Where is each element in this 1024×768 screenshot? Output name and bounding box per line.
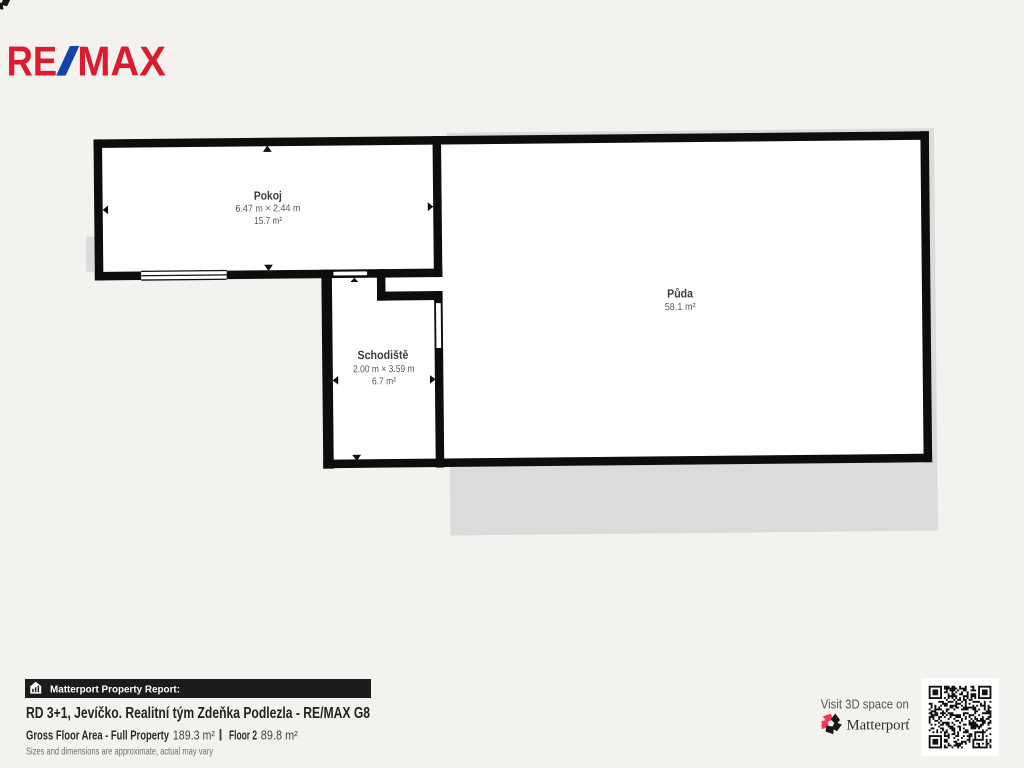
svg-text:Pokoj: Pokoj [254,188,282,202]
svg-text:Gross Floor Area - Full Proper: Gross Floor Area - Full Property [26,728,170,743]
svg-text:Visit 3D space on: Visit 3D space on [821,697,909,712]
svg-text:Matterport Property Report:: Matterport Property Report: [50,684,180,696]
svg-text:MAX: MAX [77,37,166,84]
svg-text:2.00 m × 3.59 m: 2.00 m × 3.59 m [353,364,415,376]
svg-text:89.8 m²: 89.8 m² [261,728,299,743]
svg-text:6.47 m × 2.44 m: 6.47 m × 2.44 m [235,203,300,215]
svg-text:RE: RE [7,37,58,84]
svg-text:Floor 2: Floor 2 [229,728,257,743]
svg-text:58.1 m²: 58.1 m² [665,302,697,313]
svg-text:15.7 m²: 15.7 m² [254,216,283,227]
svg-text:Schodiště: Schodiště [357,348,408,363]
svg-text:Půda: Půda [667,286,693,300]
svg-text:6.7 m²: 6.7 m² [372,376,397,387]
svg-text:189.3 m²: 189.3 m² [173,728,216,743]
svg-text:Matterport: Matterport [847,718,911,734]
svg-text:Sizes and dimensions are appro: Sizes and dimensions are approximate, ac… [26,746,214,758]
svg-text:RD 3+1, Jevíčko. Realitní tým: RD 3+1, Jevíčko. Realitní tým Zdeňka Pod… [26,705,370,722]
